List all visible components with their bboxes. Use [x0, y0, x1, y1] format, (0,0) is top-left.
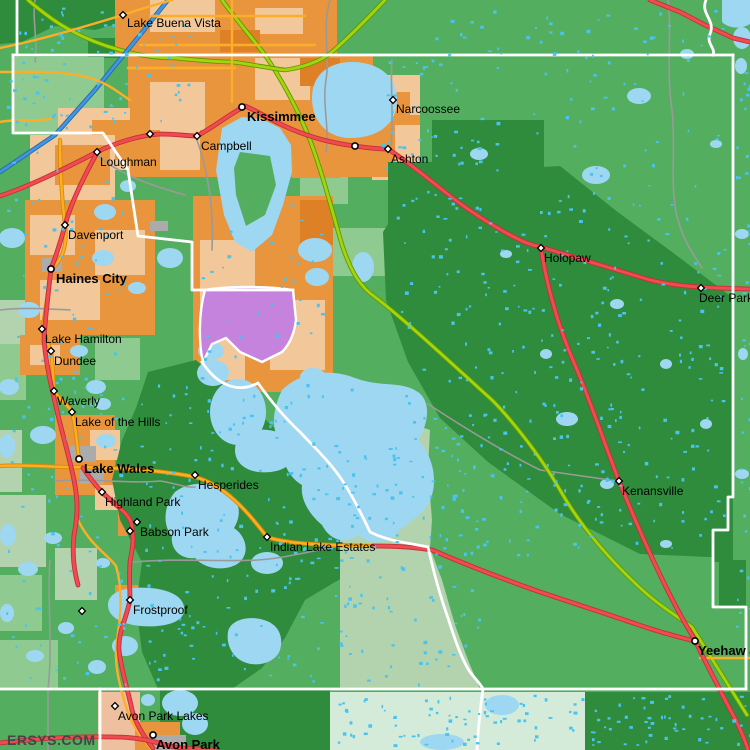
town-label[interactable]: Ashton — [391, 152, 428, 166]
town-label[interactable]: Deer Park — [699, 291, 750, 305]
town-label[interactable]: Waverly — [57, 394, 100, 408]
town-label[interactable]: Loughman — [100, 155, 157, 169]
town-label[interactable]: Haines City — [56, 271, 128, 286]
town-label[interactable]: Babson Park — [140, 525, 210, 539]
watermark: ERSYS.COM — [7, 732, 96, 748]
town-label[interactable]: Highland Park — [105, 495, 181, 509]
town-label[interactable]: Campbell — [201, 139, 252, 153]
town-label[interactable]: Davenport — [68, 228, 124, 242]
town-label[interactable]: Lake Wales — [84, 461, 154, 476]
city-marker[interactable] — [76, 456, 82, 462]
town-label[interactable]: Kenansville — [622, 484, 684, 498]
town-label[interactable]: Lake Hamilton — [45, 332, 122, 346]
town-label[interactable]: Kissimmee — [247, 109, 316, 124]
town-label[interactable]: Lake Buena Vista — [127, 16, 221, 30]
town-label[interactable]: Hesperides — [198, 478, 259, 492]
town-label[interactable]: Dundee — [54, 354, 96, 368]
town-label[interactable]: Lake of the Hills — [75, 415, 160, 429]
city-marker[interactable] — [352, 143, 358, 149]
town-label[interactable]: Holopaw — [544, 251, 591, 265]
city-marker[interactable] — [48, 266, 54, 272]
town-label[interactable]: Frostproof — [133, 603, 188, 617]
map-viewport: Lake Buena VistaKissimmeeNarcoosseeCampb… — [0, 0, 750, 750]
town-label[interactable]: Avon Park Lakes — [118, 709, 209, 723]
town-label[interactable]: Avon Park — [156, 737, 221, 750]
town-label[interactable]: Yeehaw J — [698, 643, 750, 658]
town-label[interactable]: Indian Lake Estates — [270, 540, 375, 554]
city-marker[interactable] — [239, 104, 245, 110]
town-label[interactable]: Narcoossee — [396, 102, 460, 116]
map-canvas: Lake Buena VistaKissimmeeNarcoosseeCampb… — [0, 0, 750, 750]
